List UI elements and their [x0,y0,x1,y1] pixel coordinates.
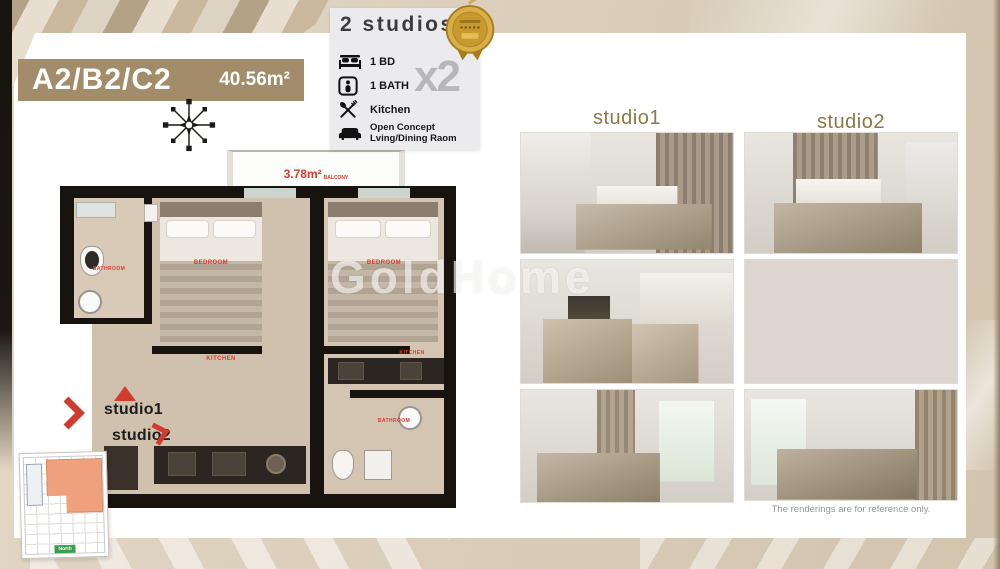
decor-top-streak [690,0,1000,33]
floor-plan: 3.78m² BALCONY [60,150,458,510]
gallery-header-studio1: studio1 [520,107,734,130]
unit-area: 40.56m² [219,69,290,91]
room-label-bedroom1: BEDROOM [178,260,244,266]
toilet-bathroom2 [332,450,354,480]
building-key-plan: North [19,451,110,559]
decor-dark-edge-left [0,0,12,470]
red-chevron-icon [62,396,86,430]
room-label-bathroom2: BATHROOM [352,418,436,424]
title-banner: A2/B2/C2 40.56m² [18,59,304,101]
unit-codes: A2/B2/C2 [32,63,172,97]
shower-bathroom1 [76,202,116,218]
bath-icon [338,76,362,96]
balcony-door-1 [244,188,296,198]
award-badge-icon [442,4,498,66]
balcony-door-2 [358,188,410,198]
plan-notch [60,324,92,456]
balcony-text-label: BALCONY [324,175,349,181]
inner-wall-3 [350,390,456,398]
red-arrow-up-icon [114,386,136,401]
bed-studio1 [160,202,262,342]
wardrobe-studio1 [104,446,138,490]
balcony-area-label: 3.78m² [284,167,322,181]
north-label: North [54,545,76,554]
feature-label-kitchen: Kitchen [370,104,410,116]
feature-label-living: Open Concept Lving/Dining Raom [370,122,474,144]
feature-label-bd: 1 BD [370,56,395,68]
pointer-studio1: studio1 [104,401,163,419]
bed-studio2 [328,202,438,342]
feature-item-bed: 1 BD [338,52,395,72]
decor-dark-edge-right [993,0,1000,569]
feature-item-kitchen: Kitchen [338,100,410,120]
gallery-photo-studio2-row3 [744,389,958,501]
compass-rose-icon [162,98,216,152]
decor-stripes-bottom-right [640,538,1000,569]
kitchen-counter-studio1 [154,446,306,484]
kitchen-icon [338,100,362,120]
inner-wall-1 [152,346,262,354]
sofa-icon [338,123,362,143]
bed-icon [338,52,362,72]
feature-item-bath: 1 BATH [338,76,409,96]
feature-label-bath: 1 BATH [370,80,409,92]
room-label-bathroom1: BATHROOM [74,266,144,272]
feature-item-living: Open Concept Lving/Dining Raom [338,122,474,144]
key-plan-core [26,464,43,506]
sink-bathroom1 [78,290,102,314]
brochure-page: A2/B2/C2 40.56m² 2 studios x2 [0,0,1000,569]
kitchen-counter-studio2 [328,358,444,384]
gallery-photo-studio2-row1 [744,132,958,254]
renderings-disclaimer: The renderings are for reference only. [744,504,958,515]
feature-heading: 2 studios [340,13,455,37]
gallery-photo-studio1-row1 [520,132,734,254]
gallery-header-studio2: studio2 [744,111,958,134]
gallery-photo-studio2-row2 [744,259,958,384]
nightstand-studio1 [144,204,158,222]
washer-bathroom2 [364,450,392,480]
room-label-kitchen2: KITCHEN [382,350,442,356]
gallery-photo-studio1-row3 [520,389,734,503]
gallery-photo-studio1-row2 [520,259,734,384]
room-label-bedroom2: BEDROOM [342,260,426,266]
room-label-kitchen1: KITCHEN [188,356,254,362]
